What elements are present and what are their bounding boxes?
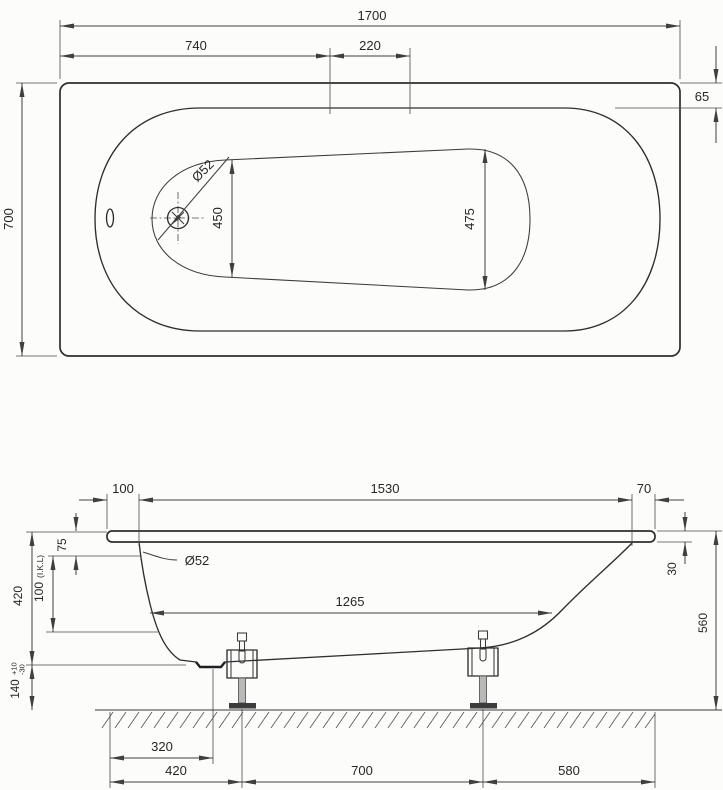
svg-text:30: 30 xyxy=(665,562,679,576)
top-view: Ø52 450 475 1700 xyxy=(1,8,722,356)
svg-text:560: 560 xyxy=(696,613,710,633)
svg-text:320: 320 xyxy=(151,739,173,754)
dim-leg-height: 140 +10 -30 xyxy=(10,662,33,710)
overflow-height-value: 100 xyxy=(32,582,46,602)
drain-sump xyxy=(196,662,225,667)
bathtub-technical-drawing: Ø52 450 475 1700 xyxy=(0,0,723,790)
svg-text:475: 475 xyxy=(462,208,477,230)
tub-outer-edge xyxy=(60,83,680,356)
overflow-height-note: (I.K.L) xyxy=(35,555,45,578)
dim-rim-thickness: 30 xyxy=(657,512,692,576)
rim-section xyxy=(107,531,655,542)
svg-text:1700: 1700 xyxy=(358,8,387,23)
dim-leg2-to-edge: 580 xyxy=(558,763,580,778)
dim-drain-offset: 320 xyxy=(110,739,213,758)
drawing-canvas: Ø52 450 475 1700 xyxy=(0,0,723,790)
svg-text:75: 75 xyxy=(55,538,69,552)
dim-rim-chain: 100 1530 70 xyxy=(79,481,684,546)
svg-text:450: 450 xyxy=(210,207,225,229)
dim-rim-to-overflow: 75 xyxy=(48,513,140,575)
svg-text:Ø52: Ø52 xyxy=(185,553,210,568)
dim-overflow-height: 100 (I.K.L) xyxy=(32,555,158,632)
dim-floor-width-foot-end: 475 xyxy=(462,149,485,290)
dim-leg-positions: 420 700 580 xyxy=(110,763,655,782)
leg-height-value: 140 xyxy=(10,679,22,698)
support-foot-1 xyxy=(227,633,257,709)
dim-overflow-diameter: Ø52 xyxy=(143,552,209,568)
svg-text:420: 420 xyxy=(11,586,25,606)
support-foot-2 xyxy=(468,631,498,709)
leg-height-tol-minus: -30 xyxy=(18,664,27,675)
dim-rim-left-overhang: 100 xyxy=(112,481,134,496)
svg-text:700: 700 xyxy=(1,208,16,230)
overflow-slot xyxy=(107,209,114,227)
dim-total-height: 560 xyxy=(657,531,722,710)
dim-leg1-offset: 420 xyxy=(165,763,187,778)
dim-total-width: 700 xyxy=(1,83,57,356)
side-view: Ø52 xyxy=(10,481,723,788)
dim-leg-spacing: 700 xyxy=(351,763,373,778)
floor xyxy=(95,710,722,728)
svg-text:65: 65 xyxy=(695,89,709,104)
bottom-and-right-wall xyxy=(225,543,632,662)
dim-tap-positions: 740 220 xyxy=(60,38,410,114)
dim-rim-opening-length: 1530 xyxy=(371,481,400,496)
dim-tap-offset: 740 xyxy=(185,38,207,53)
svg-text:1265: 1265 xyxy=(336,594,365,609)
dim-floor-width-drain-end: 450 xyxy=(210,160,232,277)
dim-rim-width: 65 xyxy=(615,46,722,143)
dim-floor-inner-length: 1265 xyxy=(150,594,552,613)
dim-tap-spacing: 220 xyxy=(359,38,381,53)
floor-hatching xyxy=(102,712,655,728)
dim-rim-right-overhang: 70 xyxy=(637,481,651,496)
